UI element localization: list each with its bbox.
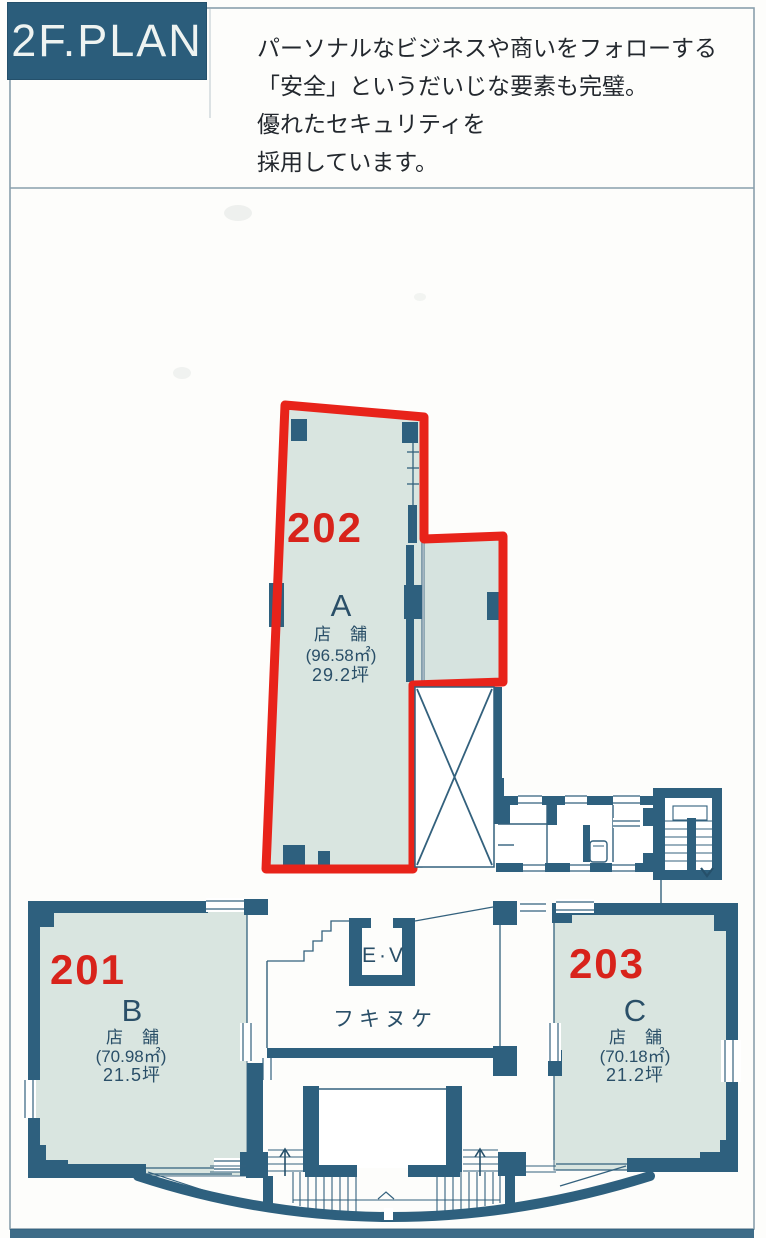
intro-line: 採用しています。 [257, 144, 737, 182]
up-arrow-icon [475, 1149, 485, 1176]
core: E·V フキヌケ [260, 901, 546, 1080]
stair-dash-line [267, 921, 351, 961]
room-c-letter: C [624, 993, 646, 1028]
intro-line: 「安全」というだいじな要素も完璧。 [257, 68, 737, 106]
cross-braced-shaft [415, 687, 502, 867]
unit-201-number: 201 [50, 946, 126, 993]
room-c-area-m2: (70.18㎡) [600, 1047, 671, 1066]
arc-notch [384, 1208, 393, 1220]
room-a-area-m2: (96.58㎡) [306, 646, 377, 665]
room-203: 203 C 店 舗 (70.18㎡) 21.2坪 [547, 899, 741, 1186]
room-b-letter: B [122, 993, 143, 1028]
main-stairs [293, 1172, 500, 1214]
bottom-band [10, 1229, 754, 1238]
room-a-use: 店 舗 [314, 625, 368, 644]
intro-paragraph: パーソナルなビジネスや商いをフォローする 「安全」というだいじな要素も完璧。 優… [257, 30, 737, 182]
section-header: 2F.PLAN [7, 2, 207, 80]
room-201: 201 B 店 舗 (70.98㎡) 21.5坪 [22, 898, 268, 1178]
step-chevron [378, 1192, 394, 1199]
room-c-use: 店 舗 [609, 1028, 663, 1047]
scanned-floor-plan-page: 202 A 店 舗 (96.58㎡) 29.2坪 [0, 0, 766, 1238]
unit-203-number: 203 [569, 940, 645, 987]
room-a-area-tsubo: 29.2坪 [312, 665, 370, 685]
atrium-label: フキヌケ [333, 1008, 437, 1031]
room-b-use: 店 舗 [106, 1028, 160, 1047]
room-b-area-tsubo: 21.5坪 [103, 1065, 161, 1085]
room-a-letter: A [331, 588, 352, 623]
up-arrow-icon [280, 1149, 290, 1176]
intro-line: 優れたセキュリティを [257, 106, 737, 144]
toilet-fixture [590, 841, 607, 862]
unit-202-number: 202 [287, 504, 363, 551]
room-b-area-m2: (70.98㎡) [96, 1047, 167, 1066]
staircase [653, 788, 722, 880]
floor-plan-drawing: 202 A 店 舗 (96.58㎡) 29.2坪 [0, 0, 766, 1238]
elevator-label: E·V [362, 944, 406, 967]
intro-line: パーソナルなビジネスや商いをフォローする [257, 30, 737, 68]
page-title: 2F.PLAN [11, 15, 203, 67]
room-c-area-tsubo: 21.2坪 [606, 1065, 664, 1085]
